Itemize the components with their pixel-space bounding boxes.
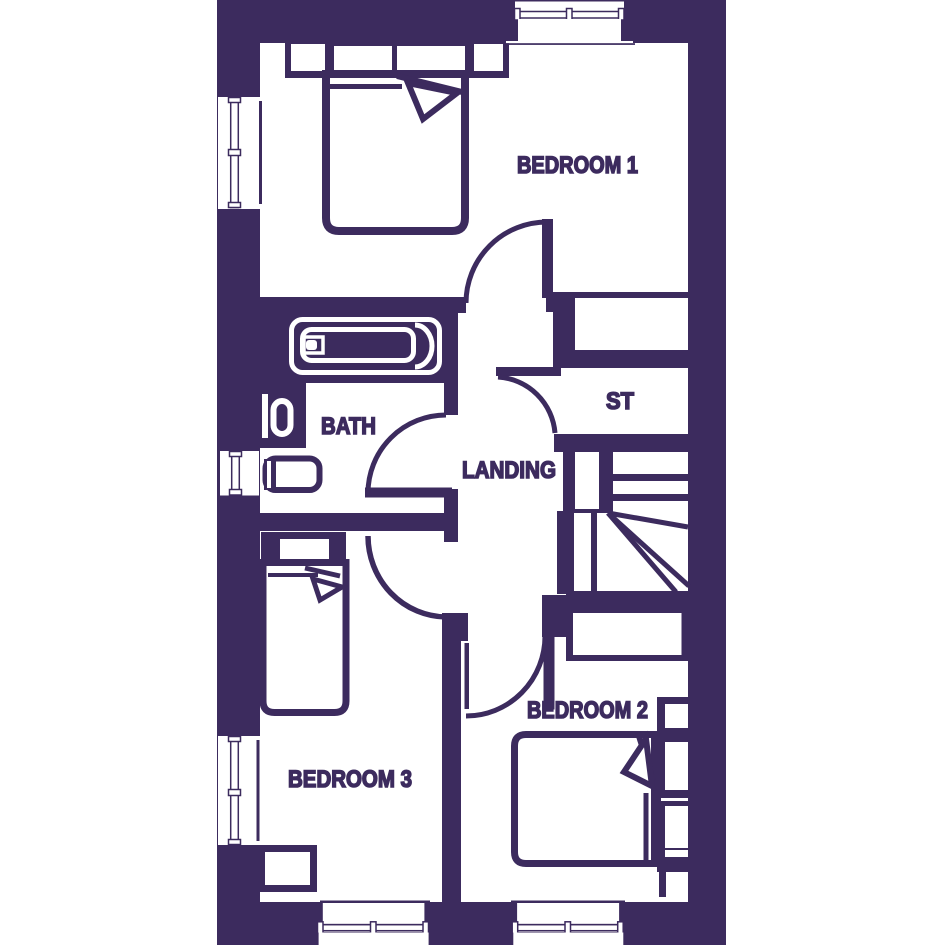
svg-text:ST: ST — [606, 388, 634, 415]
svg-text:BEDROOM 3: BEDROOM 3 — [288, 766, 412, 793]
svg-text:BEDROOM 1: BEDROOM 1 — [517, 152, 638, 179]
svg-text:LANDING: LANDING — [462, 457, 556, 484]
svg-text:BATH: BATH — [321, 413, 376, 440]
svg-text:BEDROOM 2: BEDROOM 2 — [527, 697, 648, 724]
